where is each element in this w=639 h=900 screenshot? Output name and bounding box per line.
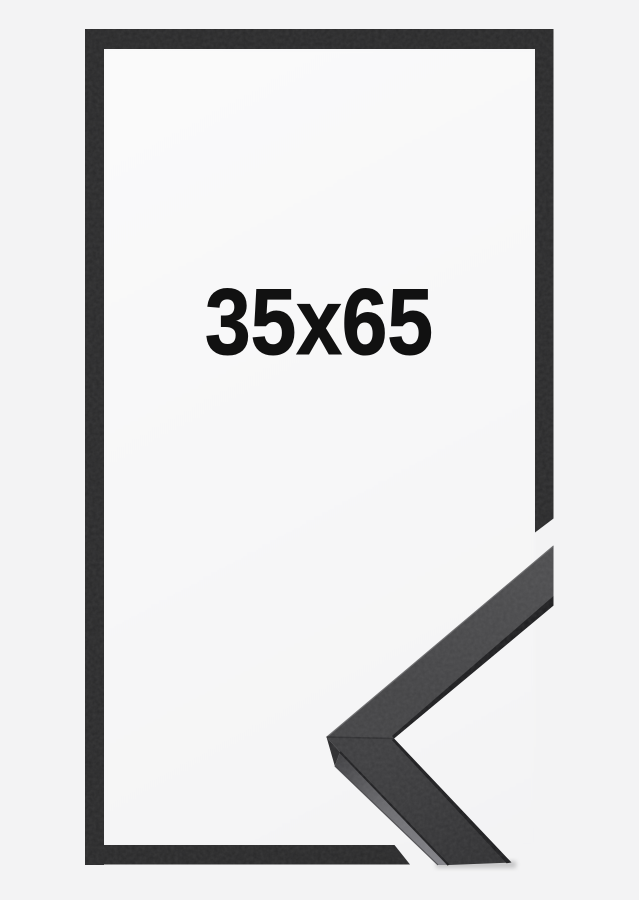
- svg-text:35x65: 35x65: [205, 269, 433, 374]
